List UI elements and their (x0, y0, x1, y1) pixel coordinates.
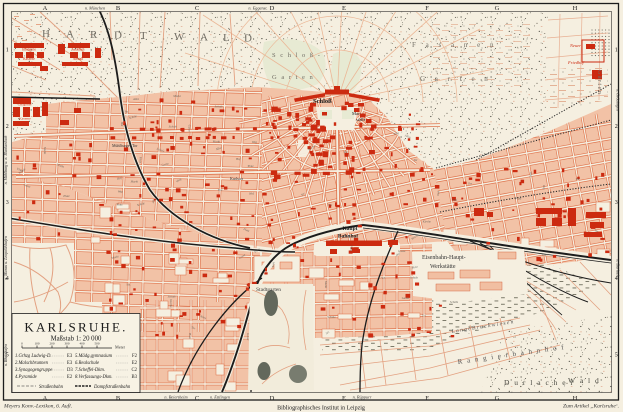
svg-text:Weg: Weg (436, 191, 440, 197)
svg-text:B3: B3 (132, 375, 138, 380)
svg-text:300: 300 (64, 342, 69, 346)
svg-text:F2: F2 (132, 354, 138, 359)
svg-text:Gasse: Gasse (398, 249, 406, 253)
svg-text:Tor: Tor (328, 203, 332, 207)
svg-text:R: R (90, 29, 98, 41)
svg-text:1: 1 (6, 48, 9, 54)
svg-text:B: B (116, 5, 121, 12)
svg-text:Allee: Allee (132, 97, 140, 101)
svg-text:Platz: Platz (514, 197, 522, 201)
svg-text:Platz: Platz (350, 245, 354, 252)
svg-text:Hof: Hof (218, 188, 223, 192)
svg-text:n. Durlach: n. Durlach (616, 259, 621, 276)
svg-text:F a s a n e n: F a s a n e n (412, 41, 497, 49)
svg-text:D: D (244, 33, 252, 45)
svg-text:Neuer: Neuer (569, 43, 581, 48)
svg-text:n. Rheinhafen: n. Rheinhafen (3, 344, 8, 366)
svg-text:W a l d: W a l d (568, 376, 600, 385)
svg-text:8.Verfassungs-Dkm.: 8.Verfassungs-Dkm. (75, 375, 113, 380)
svg-text:n. Beiertheim: n. Beiertheim (164, 395, 187, 400)
svg-text:Schule: Schule (327, 315, 336, 319)
svg-text:KARLSRUHE.: KARLSRUHE. (24, 320, 127, 335)
svg-text:500: 500 (94, 342, 99, 346)
svg-text:D3: D3 (67, 368, 73, 373)
svg-text:Schule: Schule (410, 275, 419, 279)
svg-text:G: G (495, 395, 500, 402)
svg-text:Platz: Platz (138, 156, 142, 164)
svg-text:Werkstätte: Werkstätte (430, 264, 456, 270)
svg-text:A: A (43, 395, 48, 402)
svg-text:5.Mädg.gymnasium: 5.Mädg.gymnasium (75, 354, 113, 359)
svg-text:1: 1 (615, 48, 618, 54)
svg-text:Schule: Schule (215, 105, 224, 109)
svg-text:3.Synagogengruppe: 3.Synagogengruppe (15, 368, 52, 373)
svg-text:Weg: Weg (118, 190, 124, 194)
svg-text:E3: E3 (67, 354, 73, 359)
svg-text:Kirche: Kirche (422, 219, 432, 223)
svg-text:7.Scheffel-Dkm.: 7.Scheffel-Dkm. (75, 368, 105, 373)
svg-text:F: F (425, 395, 429, 402)
svg-text:Hof: Hof (453, 198, 458, 202)
svg-text:2: 2 (6, 124, 9, 130)
svg-text:Gasse: Gasse (402, 296, 410, 300)
svg-text:Platz: Platz (62, 194, 70, 198)
svg-text:G: G (495, 5, 500, 12)
svg-text:1.Grhzg Ludwig-D.: 1.Grhzg Ludwig-D. (15, 354, 52, 359)
svg-text:E2: E2 (132, 361, 138, 366)
svg-text:H: H (573, 5, 578, 12)
svg-text:3: 3 (6, 200, 9, 206)
svg-text:Platz: Platz (117, 203, 124, 207)
svg-text:T: T (140, 30, 147, 42)
svg-text:B: B (116, 395, 121, 402)
svg-text:Markt: Markt (213, 139, 220, 143)
svg-text:4: 4 (615, 276, 618, 282)
svg-text:n. Mühlburg u. n. Blankenloch: n. Mühlburg u. n. Blankenloch (3, 136, 8, 185)
svg-text:A: A (43, 5, 48, 12)
svg-text:G ä r t e n: G ä r t e n (596, 70, 602, 94)
svg-text:Stadtgarten: Stadtgarten (256, 287, 281, 293)
svg-text:W: W (174, 31, 185, 43)
svg-text:Friedhof: Friedhof (567, 60, 584, 65)
svg-text:n. Rüppurr: n. Rüppurr (353, 395, 372, 400)
svg-text:Hof: Hof (120, 122, 124, 127)
svg-text:Schule: Schule (450, 300, 459, 304)
svg-text:Straßenbahn: Straßenbahn (39, 385, 64, 390)
svg-text:Gasse: Gasse (188, 125, 192, 133)
svg-text:G a r t e n: G a r t e n (420, 75, 492, 83)
svg-text:400: 400 (79, 342, 84, 346)
svg-text:2: 2 (615, 124, 618, 130)
svg-text:C: C (195, 395, 199, 402)
svg-text:Platz: Platz (188, 333, 192, 340)
svg-text:G a r t e n: G a r t e n (272, 74, 314, 81)
svg-text:Tor: Tor (542, 253, 546, 257)
svg-text:Meter: Meter (115, 345, 126, 350)
svg-text:Dragoner: Dragoner (18, 103, 32, 107)
svg-text:Platz: Platz (248, 164, 255, 168)
svg-text:2.Malschbrunnen: 2.Malschbrunnen (15, 361, 49, 366)
svg-text:Markt: Markt (130, 179, 138, 183)
svg-text:E3: E3 (67, 361, 73, 366)
svg-text:Gasse: Gasse (246, 333, 250, 341)
svg-text:Dampfstraßenbahn: Dampfstraßenbahn (93, 385, 131, 390)
svg-text:100: 100 (34, 342, 39, 346)
svg-text:Karlstor: Karlstor (230, 176, 244, 181)
svg-text:E: E (342, 5, 346, 12)
svg-text:Tor: Tor (422, 313, 426, 317)
svg-text:ställe: ställe (356, 117, 366, 122)
svg-text:4.Pyramide: 4.Pyramide (15, 375, 37, 380)
svg-text:n. Maxau u. Leopoldshafen: n. Maxau u. Leopoldshafen (3, 236, 8, 280)
svg-text:Schule: Schule (169, 125, 178, 129)
svg-text:D: D (270, 395, 275, 402)
svg-text:Schule: Schule (168, 294, 177, 298)
svg-text:Weg: Weg (529, 172, 533, 178)
svg-text:Schloß: Schloß (313, 98, 332, 105)
svg-text:D: D (114, 30, 122, 42)
svg-text:Kaserne: Kaserne (19, 117, 31, 121)
svg-text:C: C (195, 5, 199, 12)
svg-text:n. Grötzingen: n. Grötzingen (616, 89, 621, 111)
svg-text:Mühlburger Tor: Mühlburger Tor (112, 143, 138, 148)
svg-text:n. Eggenst.: n. Eggenst. (248, 5, 267, 10)
svg-text:3: 3 (615, 200, 618, 206)
svg-text:Markt: Markt (173, 94, 180, 98)
svg-text:H: H (42, 28, 50, 40)
svg-text:Eisenbahn-Haupt-: Eisenbahn-Haupt- (422, 255, 466, 261)
svg-text:Weg: Weg (271, 262, 275, 268)
svg-text:L: L (223, 32, 230, 44)
svg-text:H: H (573, 395, 578, 402)
svg-text:E: E (342, 395, 346, 402)
svg-text:n. München: n. München (85, 5, 105, 10)
svg-text:6.Realschule: 6.Realschule (75, 361, 99, 366)
svg-text:D: D (270, 5, 275, 12)
svg-text:Str.: Str. (125, 109, 129, 113)
svg-text:Weg: Weg (252, 140, 258, 144)
svg-text:Weg: Weg (542, 185, 546, 191)
svg-text:F: F (425, 5, 429, 12)
svg-text:Mar-: Mar- (352, 111, 361, 116)
svg-text:E2: E2 (67, 375, 73, 380)
svg-text:A: A (66, 29, 74, 41)
svg-text:n. Ettlingen: n. Ettlingen (210, 395, 230, 400)
svg-text:Haupt: Haupt (343, 226, 358, 232)
svg-text:Bibliographisches Institut in: Bibliographisches Institut in Leipzig (277, 406, 365, 412)
svg-text:Markt: Markt (43, 147, 47, 154)
svg-text:Zum Artikel „Karlsruhe‘.: Zum Artikel „Karlsruhe‘. (563, 403, 619, 410)
svg-text:0: 0 (21, 342, 23, 346)
svg-text:200: 200 (49, 342, 54, 346)
svg-text:Kadetten: Kadetten (72, 48, 85, 52)
svg-text:C2: C2 (132, 368, 138, 373)
svg-text:A: A (200, 32, 208, 44)
svg-text:Infanterie: Infanterie (22, 48, 36, 52)
svg-text:D u r l a c h e r: D u r l a c h e r (504, 378, 574, 387)
svg-text:Markt: Markt (324, 281, 328, 288)
svg-text:Kirche: Kirche (169, 299, 173, 308)
svg-text:S c h l o ß -: S c h l o ß - (272, 52, 321, 59)
svg-text:Bahnhof: Bahnhof (338, 234, 358, 240)
svg-text:Anstalt: Anstalt (73, 57, 83, 61)
svg-text:Str.: Str. (126, 282, 130, 286)
svg-text:5: 5 (615, 352, 618, 358)
svg-text:Meyers Konv.-Lexikon, 6. Aufl.: Meyers Konv.-Lexikon, 6. Aufl. (3, 403, 72, 410)
svg-text:Kaserne: Kaserne (23, 57, 35, 61)
